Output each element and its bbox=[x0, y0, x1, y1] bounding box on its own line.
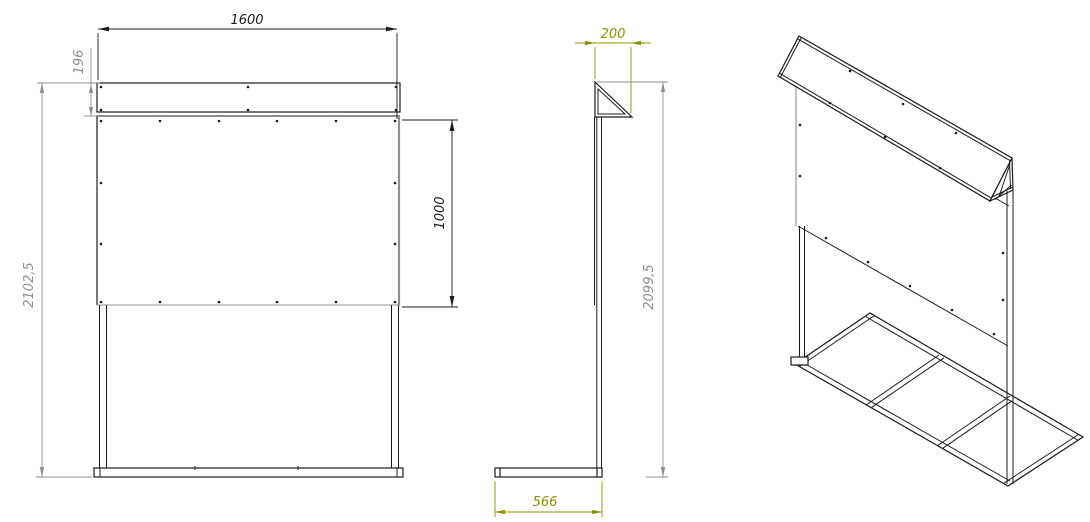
front-base-bar bbox=[94, 466, 403, 477]
dim-base-depth-label: 566 bbox=[533, 495, 558, 510]
dim-panel-height: 1000 bbox=[402, 120, 458, 307]
side-base-bar bbox=[495, 468, 602, 477]
drawing-canvas: 1600 196 2102,5 1000 bbox=[0, 0, 1090, 522]
side-bracket-triangle bbox=[595, 82, 632, 117]
dim-side-overall-height: 2099,5 bbox=[597, 82, 668, 477]
front-frame-legs bbox=[100, 305, 399, 468]
iso-base-frame bbox=[795, 313, 1083, 486]
iso-sign-box bbox=[778, 36, 1013, 201]
dim-front-width-label: 1600 bbox=[230, 13, 263, 28]
dim-side-overall-height-label: 2099,5 bbox=[642, 264, 657, 310]
dim-front-overall-height-label: 2102,5 bbox=[22, 262, 37, 308]
dim-sign-band-height: 196 bbox=[72, 48, 97, 116]
front-view: 1600 196 2102,5 1000 bbox=[22, 13, 458, 477]
front-panel bbox=[97, 116, 400, 305]
front-sign-band bbox=[97, 83, 400, 116]
dim-sign-band-height-label: 196 bbox=[72, 50, 87, 75]
dim-side-top-depth-label: 200 bbox=[601, 27, 626, 42]
side-post bbox=[595, 117, 602, 468]
side-view: 200 2099,5 566 bbox=[495, 27, 668, 517]
dim-panel-height-label: 1000 bbox=[433, 196, 448, 229]
dim-base-depth: 566 bbox=[495, 481, 602, 517]
isometric-view bbox=[778, 36, 1083, 486]
dim-side-top-depth: 200 bbox=[575, 27, 651, 113]
dim-front-overall-height: 2102,5 bbox=[22, 83, 100, 477]
